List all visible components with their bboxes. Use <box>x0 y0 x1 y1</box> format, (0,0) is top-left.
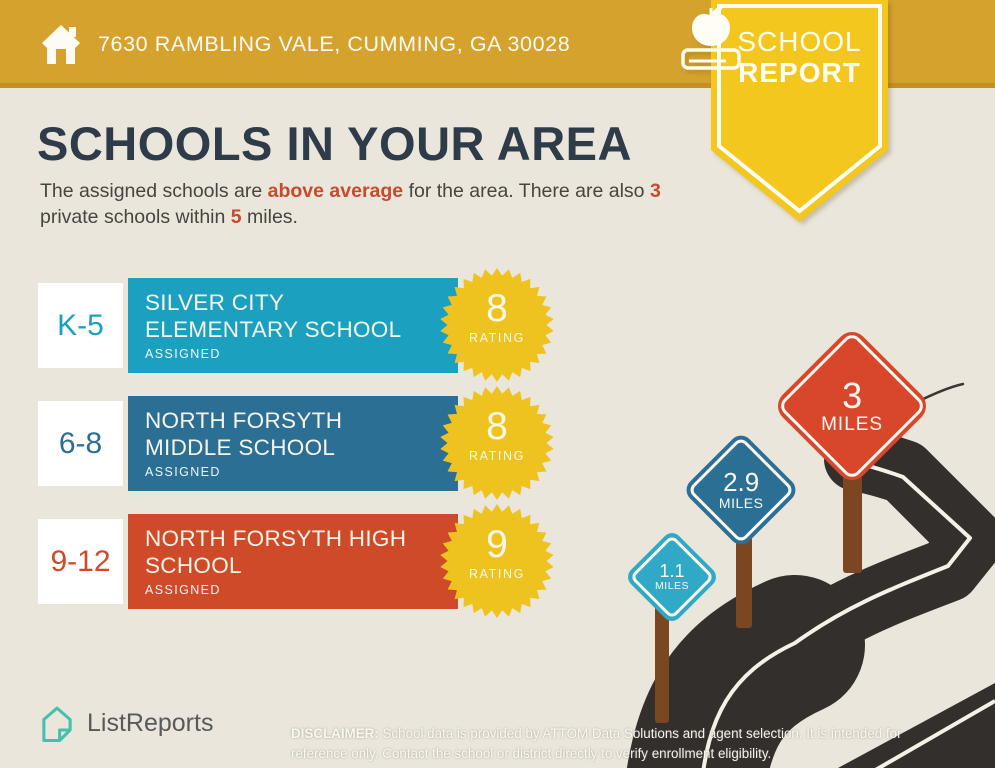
school-name: SILVER CITY ELEMENTARY SCHOOL <box>145 290 458 343</box>
grade-label: 9-12 <box>50 545 110 579</box>
distance-unit: MILES <box>719 496 764 511</box>
logo-text: ListReports <box>87 709 213 738</box>
rating-label: RATING <box>469 567 525 581</box>
school-name: NORTH FORSYTH HIGH SCHOOL <box>145 526 458 579</box>
rating-label: RATING <box>469 331 525 345</box>
school-name-line1: NORTH FORSYTH HIGH <box>145 526 458 553</box>
property-address: 7630 RAMBLING VALE, CUMMING, GA 30028 <box>98 0 570 88</box>
subtitle-text-2: for the area. There are also <box>403 180 650 202</box>
grade-box: 6-8 <box>38 401 123 486</box>
rating-value: 9 <box>486 525 508 564</box>
assigned-label: ASSIGNED <box>145 583 458 597</box>
subtitle-text-1: The assigned schools are <box>40 180 268 202</box>
distance-unit: MILES <box>655 581 689 592</box>
apple-book-icon <box>676 0 746 72</box>
rating-value: 8 <box>486 289 508 328</box>
page-title: SCHOOLS IN YOUR AREA <box>37 116 632 171</box>
school-name-line2: ELEMENTARY SCHOOL <box>145 317 458 344</box>
listreports-logo: ListReports <box>36 702 213 744</box>
school-card-middle: 6-8 NORTH FORSYTH MIDDLE SCHOOL ASSIGNED… <box>38 396 458 491</box>
rating-starburst: 8 RATING <box>440 268 554 382</box>
disclaimer-text: School data is provided by ATTOM Data So… <box>291 726 902 760</box>
assigned-label: ASSIGNED <box>145 347 458 361</box>
school-name-line2: MIDDLE SCHOOL <box>145 435 458 462</box>
school-card-elementary: K-5 SILVER CITY ELEMENTARY SCHOOL ASSIGN… <box>38 278 458 373</box>
subtitle-highlight-count: 3 <box>650 180 661 202</box>
grade-box: K-5 <box>38 283 123 368</box>
home-icon <box>38 21 84 67</box>
school-name-line1: NORTH FORSYTH <box>145 408 458 435</box>
school-card-high: 9-12 NORTH FORSYTH HIGH SCHOOL ASSIGNED … <box>38 514 458 609</box>
subtitle: The assigned schools are above average f… <box>40 179 670 230</box>
rating-starburst: 8 RATING <box>440 386 554 500</box>
distance-value: 1.1 <box>655 562 689 581</box>
disclaimer-label: DISCLAIMER: <box>291 726 379 741</box>
road-body-upper <box>782 459 972 652</box>
distance-value: 3 <box>821 377 883 415</box>
subtitle-highlight-miles: 5 <box>231 206 242 228</box>
grade-label: 6-8 <box>59 427 102 461</box>
school-list: K-5 SILVER CITY ELEMENTARY SCHOOL ASSIGN… <box>38 278 458 632</box>
school-name: NORTH FORSYTH MIDDLE SCHOOL <box>145 408 458 461</box>
rating-value: 8 <box>486 407 508 446</box>
school-bar: NORTH FORSYTH HIGH SCHOOL ASSIGNED <box>128 514 458 609</box>
school-bar: SILVER CITY ELEMENTARY SCHOOL ASSIGNED <box>128 278 458 373</box>
subtitle-text-3: private schools within <box>40 206 231 228</box>
listreports-house-icon <box>36 702 78 744</box>
grade-label: K-5 <box>57 309 104 343</box>
distance-value: 2.9 <box>719 469 764 496</box>
assigned-label: ASSIGNED <box>145 465 458 479</box>
subtitle-text-4: miles. <box>242 206 298 228</box>
school-bar: NORTH FORSYTH MIDDLE SCHOOL ASSIGNED <box>128 396 458 491</box>
grade-box: 9-12 <box>38 519 123 604</box>
rating-starburst: 9 RATING <box>440 504 554 618</box>
rating-label: RATING <box>469 449 525 463</box>
school-report-badge: SCHOOL REPORT <box>711 0 888 228</box>
school-name-line2: SCHOOL <box>145 553 458 580</box>
distance-unit: MILES <box>821 415 883 435</box>
disclaimer: DISCLAIMER: School data is provided by A… <box>291 724 931 763</box>
school-name-line1: SILVER CITY <box>145 290 458 317</box>
subtitle-highlight-above-average: above average <box>268 180 404 202</box>
